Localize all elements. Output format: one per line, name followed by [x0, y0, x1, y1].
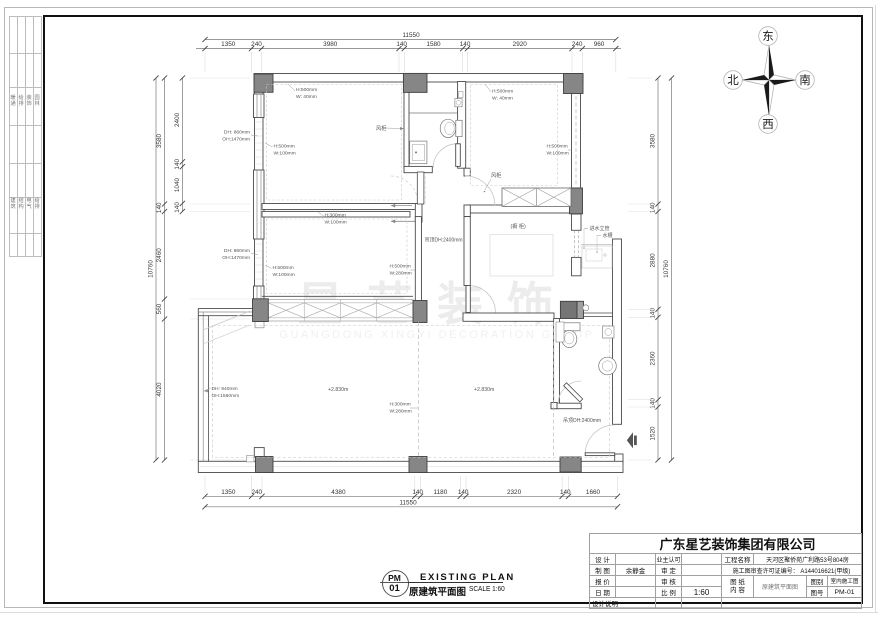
svg-text:OH:1470mm: OH:1470mm	[222, 255, 250, 261]
svg-text:H:500mm: H:500mm	[492, 89, 513, 95]
svg-text:1350: 1350	[221, 489, 236, 496]
svg-text:2880: 2880	[650, 253, 657, 268]
svg-text:(橱 柜): (橱 柜)	[511, 222, 527, 230]
svg-text:H:300mm: H:300mm	[390, 402, 411, 408]
svg-text:1350: 1350	[221, 41, 236, 48]
svg-text:OH:1470mm: OH:1470mm	[222, 137, 250, 143]
svg-text:H:300mm: H:300mm	[325, 213, 346, 219]
svg-text:140: 140	[560, 489, 571, 496]
svg-text:560: 560	[156, 303, 163, 314]
svg-text:3580: 3580	[650, 133, 657, 148]
svg-text:2360: 2360	[650, 351, 657, 366]
svg-text:东: 东	[762, 30, 774, 43]
svg-text:10760: 10760	[148, 260, 155, 278]
svg-text:H:500mm: H:500mm	[390, 264, 411, 270]
svg-text:960: 960	[594, 41, 605, 48]
svg-text:140: 140	[458, 489, 469, 496]
svg-text:3580: 3580	[156, 133, 163, 148]
svg-text:南: 南	[799, 73, 811, 87]
svg-text:DH: 940mm: DH: 940mm	[212, 386, 238, 392]
svg-text:1580: 1580	[426, 41, 441, 48]
svg-text:北: 北	[727, 74, 739, 87]
svg-text:DH: 860mm: DH: 860mm	[224, 130, 250, 136]
svg-text:2320: 2320	[507, 489, 522, 496]
svg-text:2460: 2460	[156, 248, 163, 263]
svg-text:240: 240	[251, 489, 262, 496]
svg-text:H:500mm: H:500mm	[274, 144, 295, 150]
svg-text:W:280mm: W:280mm	[390, 409, 412, 415]
svg-text:+2.830m: +2.830m	[474, 387, 494, 393]
svg-text:W:280mm: W:280mm	[390, 271, 412, 277]
svg-text:1180: 1180	[434, 489, 448, 496]
svg-text:140: 140	[460, 41, 471, 48]
svg-text:西: 西	[762, 119, 774, 131]
svg-text:4020: 4020	[156, 382, 163, 397]
svg-text:W:100mm: W:100mm	[325, 220, 347, 226]
svg-text:+2.830m: +2.830m	[328, 387, 348, 393]
svg-text:1040: 1040	[174, 177, 181, 192]
svg-text:吊顶DH:2400mm: 吊顶DH:2400mm	[425, 238, 463, 244]
svg-text:140: 140	[174, 202, 181, 213]
svg-text:140: 140	[412, 489, 423, 496]
svg-text:140: 140	[174, 158, 181, 169]
svg-text:11550: 11550	[399, 499, 417, 506]
svg-text:240: 240	[572, 41, 583, 48]
svg-text:H:500mm: H:500mm	[273, 265, 294, 271]
svg-text:W:100mm: W:100mm	[274, 151, 296, 157]
svg-text:11550: 11550	[402, 32, 420, 39]
svg-text:DH: 860mm: DH: 860mm	[224, 248, 250, 254]
svg-text:吊顶DH:2400mm: 吊顶DH:2400mm	[563, 418, 601, 424]
svg-text:H:500mm: H:500mm	[547, 144, 568, 150]
svg-text:W: 40mm: W: 40mm	[492, 96, 513, 102]
svg-text:10760: 10760	[663, 260, 670, 278]
svg-text:风柜: 风柜	[376, 124, 386, 132]
svg-text:OH:1560mm: OH:1560mm	[212, 393, 240, 399]
svg-text:140: 140	[156, 202, 163, 213]
svg-text:2920: 2920	[513, 41, 528, 48]
svg-text:W:100mm: W:100mm	[547, 151, 569, 157]
svg-text:2400: 2400	[174, 112, 181, 127]
svg-text:进水立管: 进水立管	[590, 225, 610, 232]
svg-text:3980: 3980	[323, 41, 338, 48]
svg-text:240: 240	[251, 41, 262, 48]
svg-text:4380: 4380	[331, 489, 346, 496]
svg-text:水槽: 水槽	[603, 232, 613, 239]
svg-text:风柜: 风柜	[491, 171, 501, 179]
svg-text:W: 40mm: W: 40mm	[296, 94, 317, 100]
svg-text:W:100mm: W:100mm	[273, 272, 295, 278]
svg-text:1520: 1520	[650, 426, 657, 441]
svg-text:140: 140	[396, 41, 407, 48]
svg-text:GUANGDONG XINGYI DECORATION GR: GUANGDONG XINGYI DECORATION GROUP	[279, 329, 594, 341]
svg-text:1660: 1660	[586, 489, 601, 496]
svg-text:H:500mm: H:500mm	[296, 87, 317, 93]
